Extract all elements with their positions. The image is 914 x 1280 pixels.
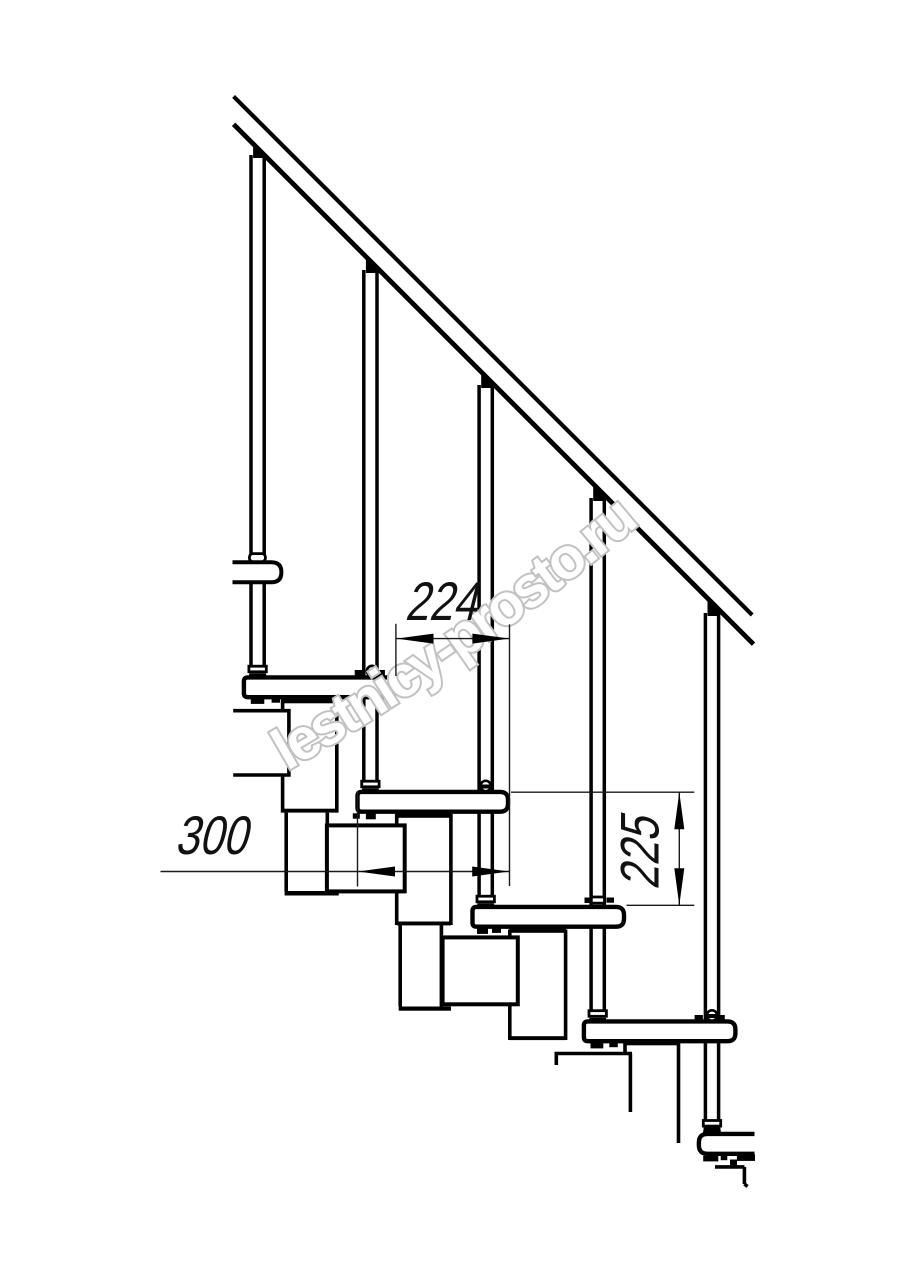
svg-text:300: 300 [172,805,259,866]
svg-text:224: 224 [402,571,489,632]
svg-text:225: 225 [609,806,670,893]
svg-text:lestnicy-prosto.ru: lestnicy-prosto.ru [261,485,646,782]
